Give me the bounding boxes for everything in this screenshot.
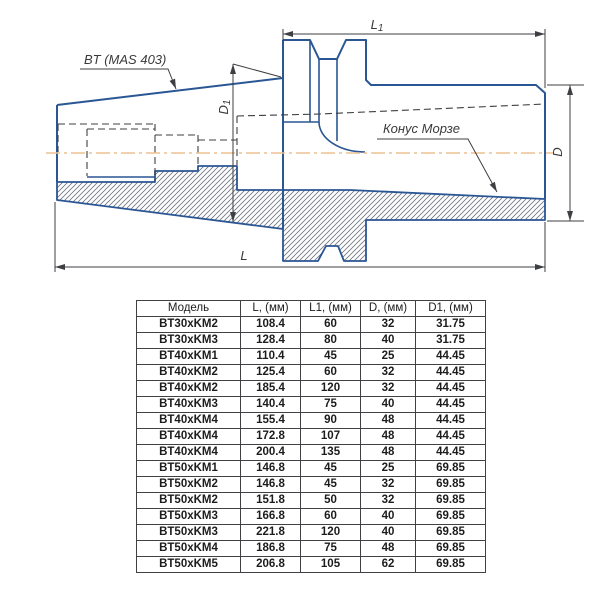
table-cell: 45 [301,461,361,477]
table-cell: BT40xKM4 [137,445,241,461]
table-header-row: Модель L, (мм) L1, (мм) D, (мм) D1, (мм) [137,301,486,317]
flange-inner-edges [283,40,337,141]
spec-table-body: BT30xKM2108.4603231.75BT30xKM3128.480403… [137,317,486,573]
table-cell: 186.8 [241,541,301,557]
table-cell: 62 [361,557,416,573]
table-cell: 75 [301,397,361,413]
dim-label-d: D [550,147,565,156]
table-cell: 44.45 [416,413,486,429]
spec-table-container: Модель L, (мм) L1, (мм) D, (мм) D1, (мм)… [136,300,486,573]
table-row: BT50xKM4186.8754869.85 [137,541,486,557]
table-cell: 108.4 [241,317,301,333]
table-cell: BT30xKM3 [137,333,241,349]
table-cell: 80 [301,333,361,349]
table-cell: 48 [361,541,416,557]
section-hatch-region [57,166,545,261]
table-cell: 60 [301,365,361,381]
spec-table: Модель L, (мм) L1, (мм) D, (мм) D1, (мм)… [136,300,486,573]
table-cell: 44.45 [416,397,486,413]
table-cell: BT50xKM4 [137,541,241,557]
table-cell: 40 [361,397,416,413]
table-cell: 69.85 [416,557,486,573]
table-row: BT50xKM2151.8503269.85 [137,493,486,509]
table-cell: 206.8 [241,557,301,573]
table-row: BT40xKM4155.4904844.45 [137,413,486,429]
table-row: BT50xKM3166.8604069.85 [137,509,486,525]
table-row: BT50xKM3221.81204069.85 [137,525,486,541]
column-header-model: Модель [137,301,241,317]
label-morse-taper: Конус Морзе [383,121,460,136]
table-cell: 40 [361,509,416,525]
table-cell: 185.4 [241,381,301,397]
dim-label-l: L [240,248,247,263]
table-cell: 69.85 [416,461,486,477]
table-cell: 45 [301,349,361,365]
table-row: BT40xKM4200.41354844.45 [137,445,486,461]
table-cell: 44.45 [416,365,486,381]
table-cell: 48 [361,413,416,429]
table-cell: 105 [301,557,361,573]
table-cell: 110.4 [241,349,301,365]
table-cell: BT40xKM4 [137,413,241,429]
table-row: BT50xKM2146.8453269.85 [137,477,486,493]
dim-label-l1: L1 [371,17,384,34]
table-cell: 69.85 [416,493,486,509]
table-cell: 60 [301,509,361,525]
table-cell: BT50xKM2 [137,477,241,493]
table-cell: 69.85 [416,477,486,493]
table-cell: BT40xKM3 [137,397,241,413]
table-cell: 32 [361,381,416,397]
bore-fillet-arc [319,122,365,152]
table-cell: 146.8 [241,477,301,493]
table-cell: 40 [361,333,416,349]
table-cell: 32 [361,365,416,381]
table-cell: 155.4 [241,413,301,429]
table-row: BT40xKM1110.4452544.45 [137,349,486,365]
table-cell: 125.4 [241,365,301,381]
table-cell: 120 [301,381,361,397]
table-cell: 140.4 [241,397,301,413]
table-row: BT50xKM1146.8452569.85 [137,461,486,477]
table-cell: 200.4 [241,445,301,461]
table-row: BT40xKM2125.4603244.45 [137,365,486,381]
label-bt-standard: BT (MAS 403) [84,52,166,67]
table-row: BT40xKM2185.41203244.45 [137,381,486,397]
table-cell: 44.45 [416,349,486,365]
technical-drawing: L1 L D D1 BT (MAS 403) Конус Морзе [0,0,606,298]
column-header-l: L, (мм) [241,301,301,317]
column-header-l1: L1, (мм) [301,301,361,317]
table-cell: BT50xKM1 [137,461,241,477]
table-cell: 146.8 [241,461,301,477]
leader-bt-standard [80,69,176,89]
table-cell: BT50xKM3 [137,509,241,525]
column-header-d: D, (мм) [361,301,416,317]
table-cell: 40 [361,525,416,541]
table-row: BT40xKM3140.4754044.45 [137,397,486,413]
column-header-d1: D1, (мм) [416,301,486,317]
table-cell: 90 [301,413,361,429]
table-cell: 31.75 [416,317,486,333]
table-cell: BT50xKM3 [137,525,241,541]
table-row: BT30xKM2108.4603231.75 [137,317,486,333]
table-cell: 172.8 [241,429,301,445]
page: L1 L D D1 BT (MAS 403) Конус Морзе Модел… [0,0,606,600]
table-cell: 60 [301,317,361,333]
table-cell: 48 [361,429,416,445]
table-cell: 221.8 [241,525,301,541]
table-cell: 107 [301,429,361,445]
table-cell: 32 [361,317,416,333]
table-cell: 44.45 [416,381,486,397]
table-cell: 32 [361,493,416,509]
table-cell: 44.45 [416,445,486,461]
table-cell: 32 [361,477,416,493]
table-cell: BT40xKM4 [137,429,241,445]
table-cell: BT40xKM2 [137,381,241,397]
table-row: BT50xKM5206.81056269.85 [137,557,486,573]
table-cell: 25 [361,461,416,477]
leader-morse-taper [377,139,497,192]
table-cell: 50 [301,493,361,509]
table-cell: 166.8 [241,509,301,525]
table-cell: 44.45 [416,429,486,445]
table-cell: 48 [361,445,416,461]
taper-shank-outline [57,78,283,182]
table-cell: 69.85 [416,541,486,557]
table-cell: BT50xKM2 [137,493,241,509]
table-cell: 135 [301,445,361,461]
table-cell: 69.85 [416,509,486,525]
table-cell: 128.4 [241,333,301,349]
table-cell: BT40xKM1 [137,349,241,365]
table-cell: BT30xKM2 [137,317,241,333]
dim-label-d1: D1 [216,100,233,115]
table-cell: 151.8 [241,493,301,509]
table-cell: 69.85 [416,525,486,541]
table-cell: 120 [301,525,361,541]
table-row: BT30xKM3128.4804031.75 [137,333,486,349]
table-cell: BT40xKM2 [137,365,241,381]
table-cell: 75 [301,541,361,557]
table-cell: 25 [361,349,416,365]
table-cell: BT50xKM5 [137,557,241,573]
table-row: BT40xKM4172.81074844.45 [137,429,486,445]
table-cell: 31.75 [416,333,486,349]
table-cell: 45 [301,477,361,493]
